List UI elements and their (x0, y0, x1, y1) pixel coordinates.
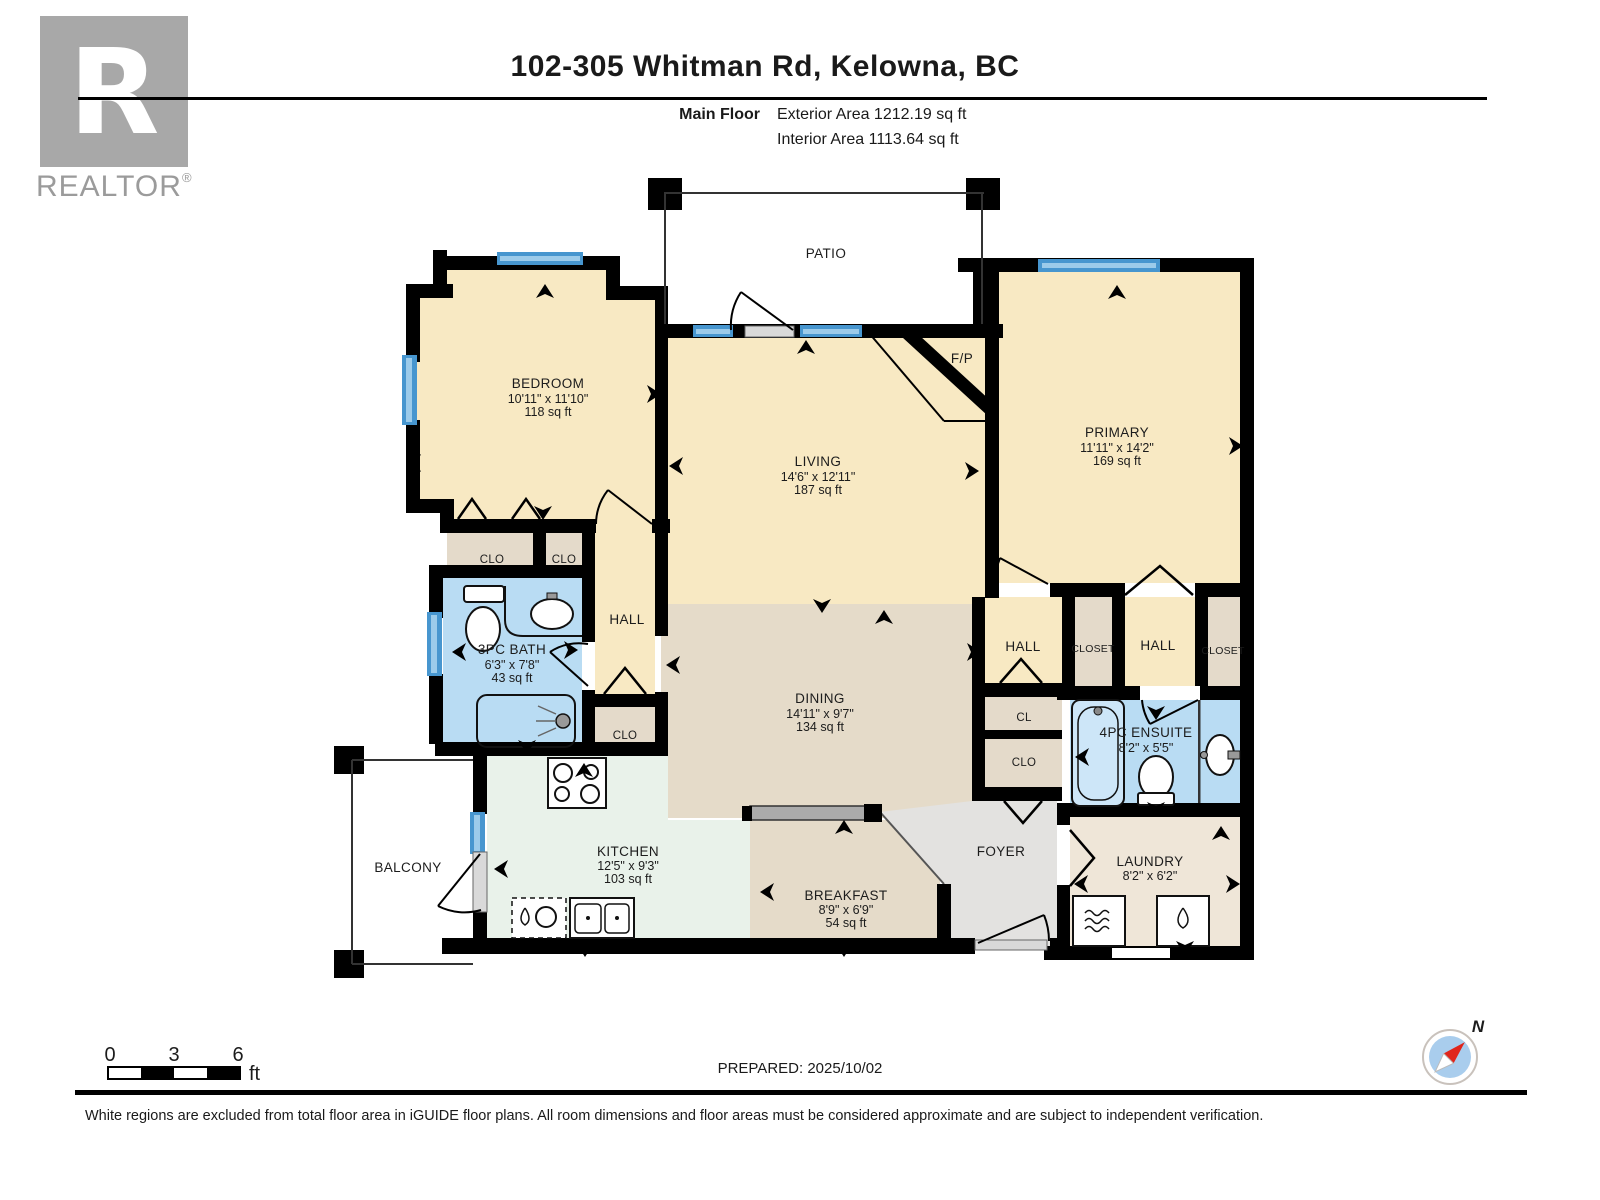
bath-area: 43 sq ft (492, 671, 534, 685)
bedroom-label: BEDROOM (512, 376, 585, 391)
window (497, 252, 583, 265)
window (800, 325, 862, 337)
bath-label: 3PC BATH (478, 642, 546, 657)
dryer (1157, 896, 1209, 946)
bath-sink (531, 599, 573, 629)
window (1038, 259, 1160, 272)
bedroom-dims: 10'11" x 11'10" (508, 392, 589, 406)
closet2-fill (1208, 597, 1240, 686)
breakfast-dims: 8'9" x 6'9" (819, 903, 874, 917)
primary-label: PRIMARY (1085, 425, 1149, 440)
dishwasher (512, 898, 566, 938)
breakfast-area: 54 sq ft (826, 916, 868, 930)
ensuite-toilet-tank (1138, 793, 1174, 805)
toilet-tank (464, 586, 504, 602)
window (693, 325, 733, 337)
floor-plan: PATIO BEDROOM 10'11" x 11'10" 118 sq ft … (0, 0, 1600, 1200)
living-dims: 14'6" x 12'11" (781, 470, 856, 484)
ensuite-vanity-line (1198, 700, 1201, 803)
balcony-label: BALCONY (374, 860, 441, 875)
clo3-label: CLO (613, 730, 638, 742)
clo1-label: CLO (480, 554, 505, 566)
kitchen-label: KITCHEN (597, 844, 659, 859)
kitchen-area: 103 sq ft (604, 872, 652, 886)
kitchen-dims: 12'5" x 9'3" (597, 859, 659, 873)
ensuite-label: 4PC ENSUITE (1100, 725, 1193, 740)
laundry-dims: 8'2" x 6'2" (1123, 869, 1178, 883)
hall2-label: HALL (1140, 638, 1175, 653)
counter (750, 806, 866, 820)
laundry-wall-notch (1112, 948, 1170, 958)
bath-dims: 6'3" x 7'8" (485, 658, 540, 672)
window (470, 812, 485, 854)
closet1-fill (1075, 597, 1112, 686)
compass-north-label: N (1472, 1017, 1485, 1036)
hall1-label: HALL (1005, 639, 1040, 654)
primary-dims: 11'11" x 14'2" (1080, 441, 1154, 455)
patio-label: PATIO (806, 246, 847, 261)
closet2-label: CLOSET (1201, 645, 1245, 657)
bath-faucet (547, 593, 557, 599)
shower-head (556, 714, 570, 728)
fireplace-label: F/P (951, 351, 973, 366)
clo4-label: CLO (1012, 757, 1037, 769)
dining-area: 134 sq ft (796, 720, 844, 734)
hall-left-label: HALL (609, 612, 644, 627)
window (402, 355, 417, 425)
dining-label: DINING (795, 691, 845, 706)
window (427, 612, 442, 676)
footer-rule (75, 1090, 1527, 1095)
entry-door-slab (975, 940, 1047, 950)
bedroom-area: 118 sq ft (524, 405, 572, 419)
tub-faucet (1094, 707, 1102, 715)
dining-dims: 14'11" x 9'7" (786, 707, 854, 721)
breakfast-label: BREAKFAST (804, 888, 887, 903)
laundry-label: LAUNDRY (1116, 854, 1183, 869)
ensuite-dims: 8'2" x 5'5" (1119, 741, 1174, 755)
foyer-label: FOYER (977, 844, 1026, 859)
ensuite-toilet-bowl (1139, 756, 1173, 798)
primary-area: 169 sq ft (1093, 454, 1141, 468)
cl-label: CL (1016, 712, 1032, 724)
living-area: 187 sq ft (794, 483, 842, 497)
patio-door-slab (745, 326, 794, 337)
disclaimer-text: White regions are excluded from total fl… (85, 1108, 1525, 1124)
closet1-label: CLOSET (1071, 643, 1115, 655)
living-label: LIVING (795, 454, 842, 469)
clo2-label: CLO (552, 554, 577, 566)
washer (1073, 896, 1125, 946)
prepared-date: PREPARED: 2025/10/02 (0, 1060, 1600, 1077)
